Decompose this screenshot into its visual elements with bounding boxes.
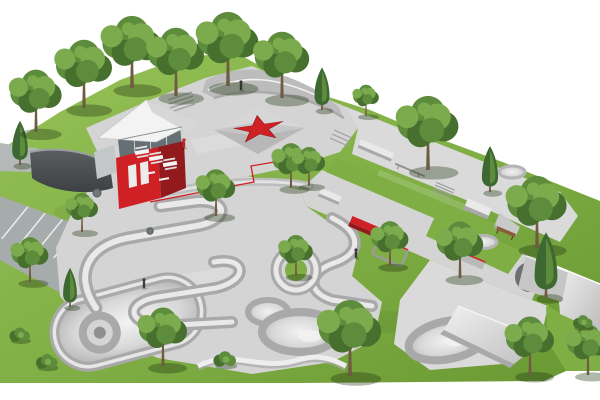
pump-bump (499, 166, 525, 178)
skatepark-render (0, 0, 600, 400)
red-container-side (158, 141, 186, 198)
container-door (128, 164, 137, 188)
